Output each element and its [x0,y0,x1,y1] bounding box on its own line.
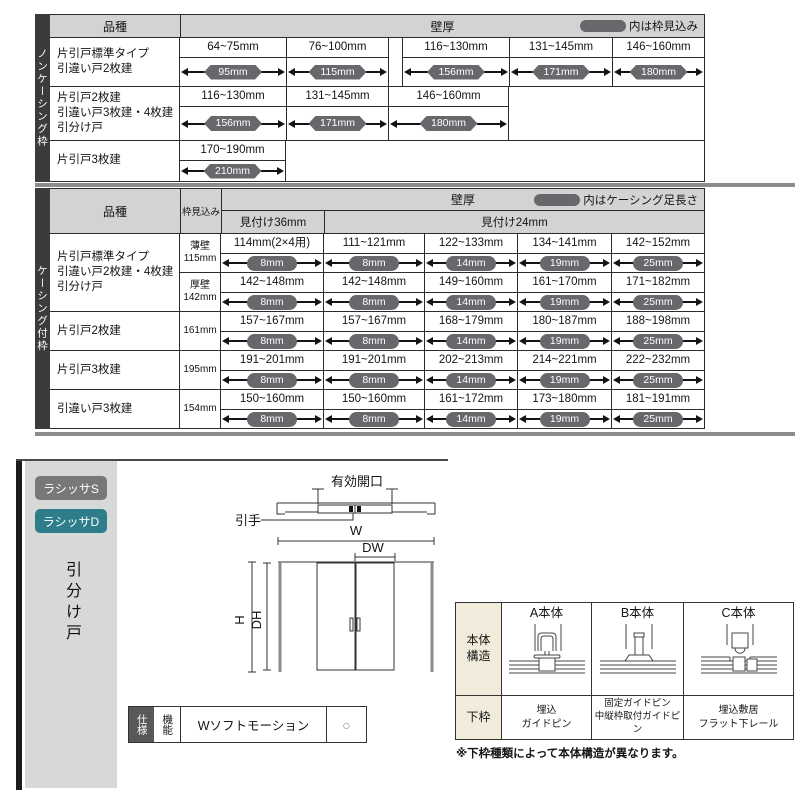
arrow-right-icon [509,298,516,306]
depth-capsule: 8mm [247,295,297,310]
series-sidebar: ラシッサS ラシッサD 引分け戸 [25,461,117,788]
arrow-right-icon [278,120,285,128]
wall-range-text: 191~201mm [221,351,323,371]
section-divider [35,183,795,187]
function-header: 機能 [154,707,181,742]
wall-range-text: 131~145mm [287,87,388,107]
dimension-arrow: 19mm [518,371,611,389]
depth-capsule: 19mm [540,373,590,388]
body-structure-header: 本体 構造 [456,603,501,695]
arrow-right-icon [278,68,285,76]
dimension-arrow: 156mm [180,107,286,140]
dimension-arrow: 8mm [324,410,424,428]
product-label: 引違い戸3枚建 [50,390,180,428]
non-casing-table: ノンケーシング枠 品種 壁厚 内は枠見込み 片引戸標準タイプ 引違い戸2枚建 6… [35,14,705,182]
wall-range-text: 150~160mm [221,390,323,410]
a-body-title: A本体 [530,603,563,621]
row-cells: 64~75mm95mm76~100mm115mm116~130mm156mm13… [180,38,704,86]
dimension-arrow: 8mm [221,410,323,428]
wall-range-cell: 131~145mm171mm [509,38,612,86]
wall-range-cell: 142~148mm8mm [221,273,323,311]
wall-range-text: 116~130mm [180,87,286,107]
wall-range-cell: 149~160mm14mm [424,273,517,311]
dimension-arrow: 8mm [221,371,323,389]
casing-side-label: ケーシング付枠 [35,188,50,429]
wall-range-text: 142~148mm [324,273,424,293]
arrow-right-icon [315,298,322,306]
spec-sheet-page: ノンケーシング枠 品種 壁厚 内は枠見込み 片引戸標準タイプ 引違い戸2枚建 6… [0,0,800,800]
wall-range-cell: 150~160mm8mm [221,390,323,428]
table2-wall-header: 壁厚 内はケーシング足長さ [222,189,704,211]
right-handle [357,618,360,631]
arrow-right-icon [501,68,508,76]
dimension-arrow: 171mm [510,58,612,86]
c-body-title: C本体 [721,603,755,621]
dimension-arrow: 25mm [612,332,704,350]
product-label: 片引戸3枚建 [50,351,180,389]
spec-header: 仕様 [129,707,154,742]
wall-range-text: 142~152mm [612,234,704,254]
product-label: 片引戸標準タイプ 引違い戸2枚建・4枚建 引分け戸 [50,234,180,311]
arrow-right-icon [603,298,610,306]
arrow-right-icon [509,337,516,345]
depth-capsule: 19mm [540,256,590,271]
table2-frame-depth-header: 枠見込み [181,189,222,233]
table-row-group: 引違い戸3枚建 154mm150~160mm8mm150~160mm8mm161… [50,389,704,428]
wall-range-cell: 214~221mm19mm [517,351,611,389]
dimension-arrow: 14mm [425,254,517,272]
depth-capsule: 180mm [630,65,688,80]
table-row: 片引戸標準タイプ 引違い戸2枚建 64~75mm95mm76~100mm115m… [50,38,704,86]
wall-range-text: 214~221mm [518,351,611,371]
opening-dim-lines [318,489,392,504]
row-cells: 191~201mm8mm191~201mm8mm202~213mm14mm214… [221,351,704,389]
depth-capsule: 14mm [446,295,496,310]
wall-range-cell: 157~167mm8mm [221,312,323,350]
wall-range-cell: 222~232mm25mm [611,351,704,389]
wall-range-cell: 168~179mm14mm [424,312,517,350]
depth-capsule: 25mm [633,412,683,427]
wall-range-text: 168~179mm [425,312,517,332]
legend-capsule-icon [580,20,626,32]
wall-range-text: 131~145mm [510,38,612,58]
group-rows: 薄壁 115mm114mm(2×4用)8mm111~121mm8mm122~13… [180,234,704,311]
wall-range-cell: 111~121mm8mm [323,234,424,272]
wall-range-cell: 181~191mm25mm [611,390,704,428]
effective-opening-label: 有効開口 [331,474,383,489]
table-row: 薄壁 115mm114mm(2×4用)8mm111~121mm8mm122~13… [180,234,704,272]
wall-range-text: 173~180mm [518,390,611,410]
table-row: 154mm150~160mm8mm150~160mm8mm161~172mm14… [180,390,704,428]
arrow-right-icon [500,120,507,128]
row-cells: 114mm(2×4用)8mm111~121mm8mm122~133mm14mm1… [221,234,704,272]
depth-capsule: 180mm [420,116,478,131]
wall-range-cell: 202~213mm14mm [424,351,517,389]
wall-range-cell: 191~201mm8mm [221,351,323,389]
wall-range-cell: 173~180mm19mm [517,390,611,428]
depth-capsule: 95mm [204,65,262,80]
frame-depth-cell: 厚壁 142mm [180,273,221,311]
legend-capsule-icon [534,194,580,206]
table-row-group: 片引戸3枚建 195mm191~201mm8mm191~201mm8mm202~… [50,350,704,389]
depth-capsule: 171mm [309,116,367,131]
group-rows: 161mm157~167mm8mm157~167mm8mm168~179mm14… [180,312,704,350]
wall-range-cell: 142~152mm25mm [611,234,704,272]
table1-product-header: 品種 [50,15,181,37]
dimension-arrow: 8mm [324,371,424,389]
handle-leader-line [261,513,353,520]
dh-label: DH [249,611,264,630]
non-casing-side-label: ノンケーシング枠 [35,14,50,182]
b-body-diagram [596,621,680,679]
table-row-group: 片引戸標準タイプ 引違い戸2枚建・4枚建 引分け戸 薄壁 115mm114mm(… [50,234,704,311]
casing-table-main: 品種 枠見込み 壁厚 内はケーシング足長さ 見付け36mm 見付け24mm [50,188,705,429]
table1-wall-header: 壁厚 内は枠見込み [181,15,704,37]
soft-motion-label: Wソフトモーション [181,707,327,742]
arrow-right-icon [416,337,423,345]
table1-legend: 内は枠見込み [580,15,698,37]
dimension-arrow: 19mm [518,332,611,350]
arrow-right-icon [603,415,610,423]
row-cells: 150~160mm8mm150~160mm8mm161~172mm14mm173… [221,390,704,428]
arrow-right-icon [509,259,516,267]
dimension-arrow: 8mm [221,254,323,272]
arrow-right-icon [416,259,423,267]
wall-range-text: 157~167mm [221,312,323,332]
arrow-right-icon [277,167,284,175]
dimension-arrow: 25mm [612,293,704,311]
face-36-header: 見付け36mm [222,211,325,233]
right-door-panel [356,563,394,670]
b-lower-frame: 固定ガイドピン 中縦枠取付ガイドピン [591,695,683,739]
depth-capsule: 25mm [633,334,683,349]
group-rows: 195mm191~201mm8mm191~201mm8mm202~213mm14… [180,351,704,389]
depth-capsule: 25mm [633,256,683,271]
product-label: 片引戸2枚建 引違い戸3枚建・4枚建 引分け戸 [50,87,180,140]
dw-label: DW [362,540,384,555]
dimension-arrow: 8mm [324,254,424,272]
pull-handle-label: 引手 [235,513,261,528]
arrow-right-icon [603,376,610,384]
w-dim-line [278,537,434,545]
dimension-arrow: 19mm [518,293,611,311]
table-row: 片引戸2枚建 引違い戸3枚建・4枚建 引分け戸 116~130mm156mm13… [50,86,704,140]
dimension-arrow: 8mm [221,332,323,350]
wall-range-cell: 116~130mm156mm [403,38,509,86]
product-label: 片引戸2枚建 [50,312,180,350]
arrow-right-icon [380,120,387,128]
wall-range-text: 146~160mm [389,87,508,107]
table-row: 片引戸3枚建 170~190mm210mm [50,140,704,181]
wall-range-text: 76~100mm [287,38,388,58]
depth-capsule: 8mm [349,412,399,427]
arrow-right-icon [416,298,423,306]
wall-range-cell: 142~148mm8mm [323,273,424,311]
spacer-cell [388,38,403,86]
wall-range-cell: 116~130mm156mm [180,87,286,140]
arrow-right-icon [696,68,703,76]
frame-depth-cell: 195mm [180,351,221,389]
depth-capsule: 14mm [446,256,496,271]
c-body-cell: C本体 [683,603,793,695]
wall-range-cell: 157~167mm8mm [323,312,424,350]
door-type-label: 引分け戸 [59,561,83,645]
dimension-arrow: 8mm [324,293,424,311]
lower-frame-header: 下枠 [456,695,501,739]
dimension-arrow: 156mm [403,58,509,86]
table2-product-header: 品種 [50,189,181,233]
door-dimension-diagram: 有効開口 引手 W DW H DH [225,462,450,712]
depth-capsule: 8mm [349,256,399,271]
dimension-arrow: 14mm [425,371,517,389]
dimension-arrow: 14mm [425,293,517,311]
arrow-right-icon [315,415,322,423]
dimension-arrow: 25mm [612,371,704,389]
a-lower-frame: 埋込 ガイドピン [501,695,591,739]
plan-handle-left [349,506,353,512]
wall-range-cell: 122~133mm14mm [424,234,517,272]
frame-depth-cell: 161mm [180,312,221,350]
dimension-arrow: 14mm [425,410,517,428]
non-casing-table-main: 品種 壁厚 内は枠見込み 片引戸標準タイプ 引違い戸2枚建 64~75mm95m… [50,14,705,182]
depth-capsule: 19mm [540,412,590,427]
depth-capsule: 156mm [204,116,262,131]
arrow-right-icon [696,259,703,267]
depth-capsule: 156mm [427,65,485,80]
wall-range-cell: 171~182mm25mm [611,273,704,311]
c-lower-frame: 埋込敷居 フラット下レール [683,695,793,739]
depth-capsule: 25mm [633,373,683,388]
arrow-right-icon [603,259,610,267]
wall-range-text: 161~170mm [518,273,611,293]
face-24-header: 見付け24mm [325,211,704,233]
frame-depth-cell: 薄壁 115mm [180,234,221,272]
arrow-right-icon [604,68,611,76]
plan-handle-right [357,506,361,512]
arrow-right-icon [380,68,387,76]
h-label: H [232,615,247,624]
depth-capsule: 8mm [349,295,399,310]
wall-range-text: 181~191mm [612,390,704,410]
section-divider [35,432,795,436]
table-row: 195mm191~201mm8mm191~201mm8mm202~213mm14… [180,351,704,389]
left-edge-bar [16,461,22,790]
dimension-arrow: 115mm [287,58,388,86]
depth-capsule: 25mm [633,295,683,310]
a-body-cell: A本体 [501,603,591,695]
wall-range-text: 161~172mm [425,390,517,410]
depth-capsule: 210mm [204,164,262,179]
wall-range-cell: 161~170mm19mm [517,273,611,311]
row-cells: 170~190mm210mm [180,141,704,181]
table-row-group: 片引戸2枚建 161mm157~167mm8mm157~167mm8mm168~… [50,311,704,350]
wall-range-text: 180~187mm [518,312,611,332]
left-handle [350,618,353,631]
dimension-arrow: 14mm [425,332,517,350]
arrow-right-icon [315,259,322,267]
dimension-arrow: 19mm [518,410,611,428]
wall-range-text: 191~201mm [324,351,424,371]
depth-capsule: 8mm [247,334,297,349]
wall-range-text: 146~160mm [613,38,704,58]
wall-range-text: 150~160mm [324,390,424,410]
b-body-title: B本体 [621,603,654,621]
depth-capsule: 8mm [247,373,297,388]
wall-range-text: 157~167mm [324,312,424,332]
table2-legend: 内はケーシング足長さ [534,189,698,210]
depth-capsule: 8mm [349,373,399,388]
wall-range-text: 111~121mm [324,234,424,254]
arrow-right-icon [416,415,423,423]
wall-range-text: 188~198mm [612,312,704,332]
depth-capsule: 19mm [540,295,590,310]
dimension-arrow: 210mm [180,161,285,181]
wall-range-text: 171~182mm [612,273,704,293]
lasissa-s-badge: ラシッサS [35,476,107,500]
wall-range-cell: 134~141mm19mm [517,234,611,272]
c-body-diagram [697,621,781,679]
arrow-right-icon [509,415,516,423]
table2-subheader: 見付け36mm 見付け24mm [222,211,704,233]
product-label: 片引戸標準タイプ 引違い戸2枚建 [50,38,180,86]
depth-capsule: 8mm [247,412,297,427]
depth-capsule: 8mm [349,334,399,349]
depth-capsule: 14mm [446,334,496,349]
casing-table: ケーシング付枠 品種 枠見込み 壁厚 内はケーシング足長さ 見付け36mm 見 [35,188,705,429]
dimension-arrow: 25mm [612,410,704,428]
product-label: 片引戸3枚建 [50,141,180,181]
wall-range-cell: 161~172mm14mm [424,390,517,428]
arrow-right-icon [603,337,610,345]
wall-range-cell: 170~190mm210mm [180,141,286,181]
wall-range-cell: 188~198mm25mm [611,312,704,350]
row-cells: 157~167mm8mm157~167mm8mm168~179mm14mm180… [221,312,704,350]
lasissa-d-badge: ラシッサD [35,509,107,533]
b-body-cell: B本体 [591,603,683,695]
wall-range-cell: 131~145mm171mm [286,87,388,140]
table2-wall-headers: 壁厚 内はケーシング足長さ 見付け36mm 見付け24mm [222,189,704,233]
frame-depth-cell: 154mm [180,390,221,428]
spec-table: 仕様 機能 Wソフトモーション ○ [128,706,367,743]
wall-range-text: 149~160mm [425,273,517,293]
table2-header: 品種 枠見込み 壁厚 内はケーシング足長さ 見付け36mm 見付け24mm [50,189,704,234]
structure-note: ※下枠種類によって本体構造が異なります。 [456,745,684,761]
wall-range-text: 142~148mm [221,273,323,293]
wall-range-cell: 146~160mm180mm [388,87,509,140]
depth-capsule: 19mm [540,334,590,349]
wall-range-text: 170~190mm [180,141,285,161]
arrow-right-icon [696,298,703,306]
dimension-arrow: 180mm [613,58,704,86]
dh-dim-line [263,563,271,670]
left-door-panel [317,563,355,670]
table1-header: 品種 壁厚 内は枠見込み [50,15,704,38]
wall-range-text: 134~141mm [518,234,611,254]
wall-thickness-label: 壁厚 [451,191,475,208]
dimension-arrow: 19mm [518,254,611,272]
wall-range-cell: 76~100mm115mm [286,38,388,86]
arrow-right-icon [315,337,322,345]
arrow-right-icon [315,376,322,384]
wall-range-text: 122~133mm [425,234,517,254]
wall-range-text: 202~213mm [425,351,517,371]
depth-capsule: 14mm [446,373,496,388]
arrow-right-icon [696,376,703,384]
dimension-arrow: 8mm [324,332,424,350]
row-cells: 142~148mm8mm142~148mm8mm149~160mm14mm161… [221,273,704,311]
wall-range-cell: 191~201mm8mm [323,351,424,389]
arrow-right-icon [696,415,703,423]
table-row: 厚壁 142mm142~148mm8mm142~148mm8mm149~160m… [180,272,704,311]
wall-thickness-label: 壁厚 [430,18,454,35]
table2-legend-note: 内はケーシング足長さ [583,192,698,208]
wall-range-text: 64~75mm [180,38,286,58]
dimension-arrow: 8mm [221,293,323,311]
row-cells: 116~130mm156mm131~145mm171mm146~160mm180… [180,87,704,140]
wall-range-text: 116~130mm [403,38,509,58]
supported-mark: ○ [327,707,366,742]
table1-legend-note: 内は枠見込み [629,18,698,34]
wall-range-cell: 64~75mm95mm [180,38,286,86]
body-structure-table: 本体 構造 A本体 B本体 [455,602,794,740]
arrow-right-icon [509,376,516,384]
a-body-diagram [505,621,589,679]
dimension-arrow: 180mm [389,107,508,140]
wall-range-text: 114mm(2×4用) [221,234,323,254]
group-rows: 154mm150~160mm8mm150~160mm8mm161~172mm14… [180,390,704,428]
depth-capsule: 14mm [446,412,496,427]
w-label: W [350,523,363,538]
dimension-arrow: 25mm [612,254,704,272]
depth-capsule: 8mm [247,256,297,271]
dimension-arrow: 171mm [287,107,388,140]
depth-capsule: 171mm [532,65,590,80]
table-row: 161mm157~167mm8mm157~167mm8mm168~179mm14… [180,312,704,350]
arrow-right-icon [416,376,423,384]
wall-range-text: 222~232mm [612,351,704,371]
arrow-right-icon [696,337,703,345]
wall-range-cell: 114mm(2×4用)8mm [221,234,323,272]
dimension-arrow: 95mm [180,58,286,86]
wall-range-cell: 180~187mm19mm [517,312,611,350]
wall-range-cell: 150~160mm8mm [323,390,424,428]
depth-capsule: 115mm [309,65,367,80]
wall-range-cell: 146~160mm180mm [612,38,704,86]
